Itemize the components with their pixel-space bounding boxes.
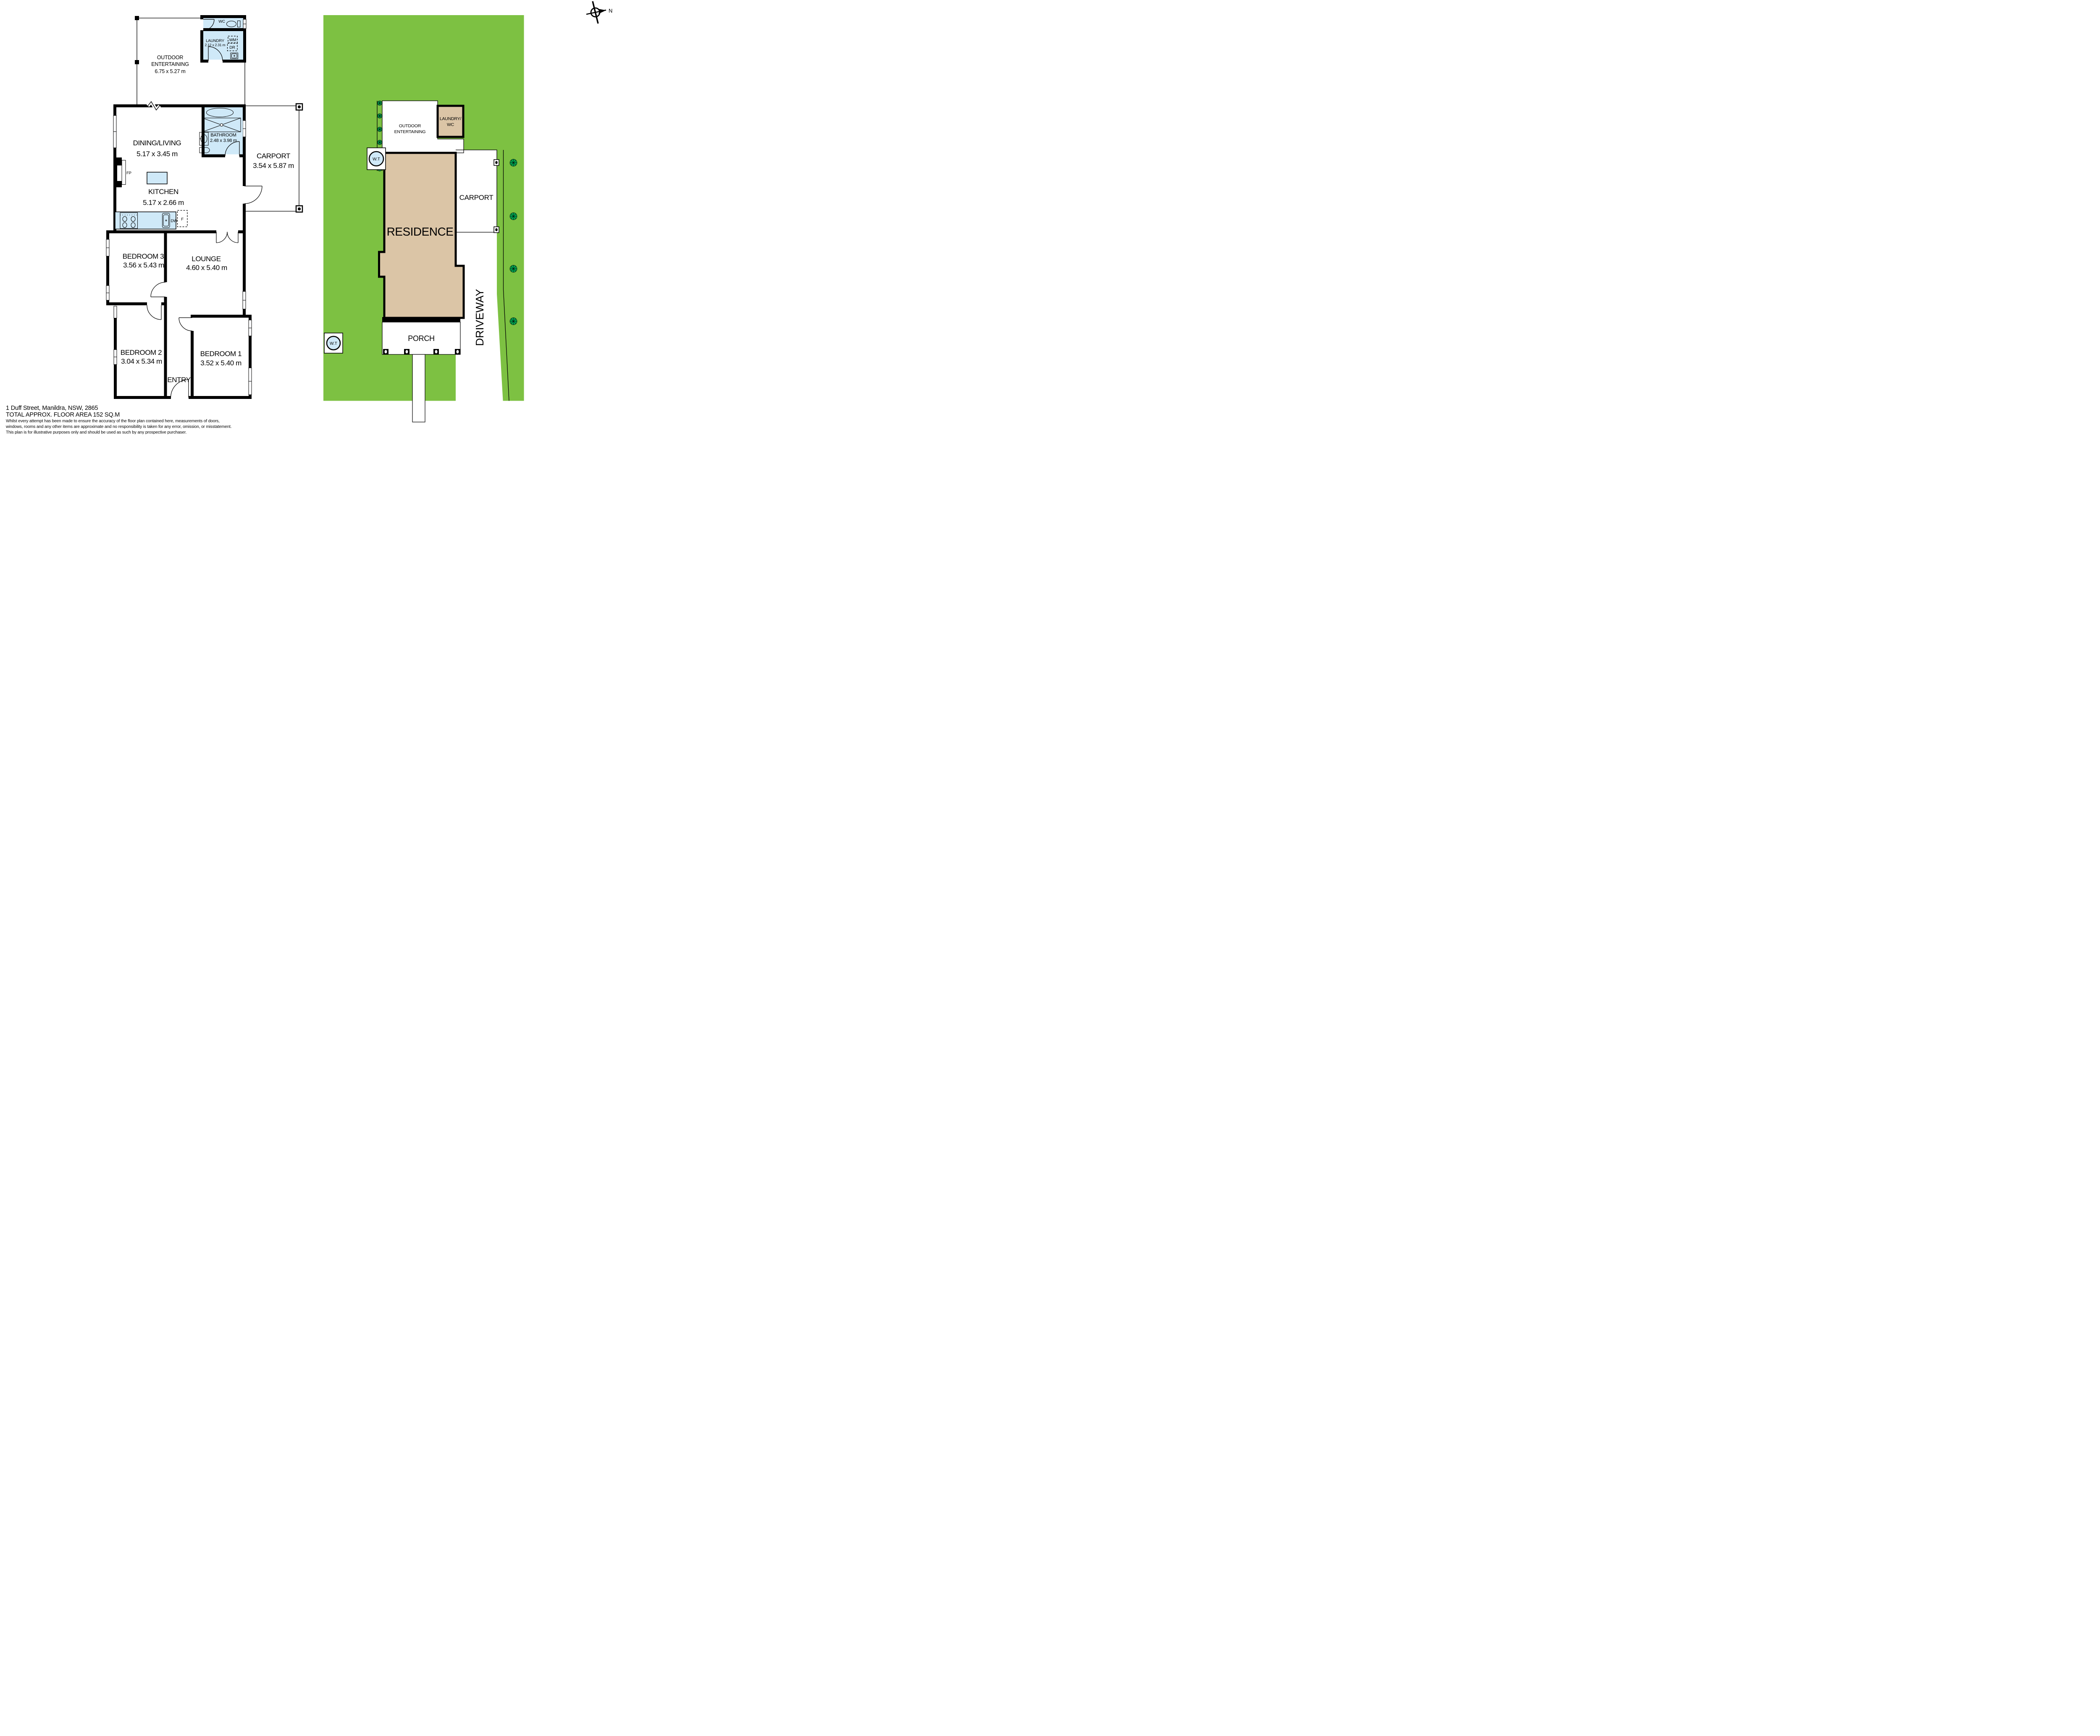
fireplace: FP [116, 157, 131, 187]
site-outdoor-label-1: OUTDOOR [399, 123, 421, 128]
entry-label: ENTRY [167, 376, 190, 384]
laundry-wc-site [438, 106, 463, 137]
laundry-wc-block: WC LAUNDRY 2.12 x 2.31 m WM DR [200, 15, 246, 63]
site-laundry-label-2: WC [447, 122, 454, 127]
disclaimer-line-3: This plan is for illustrative purposes o… [6, 430, 186, 435]
water-tank-bottom: W.T [324, 333, 343, 353]
wc-label: WC [218, 19, 225, 24]
water-tank-label: W.T [330, 341, 337, 346]
disclaimer-line-2: windows, rooms and any other items are a… [5, 425, 231, 429]
porch-post [455, 349, 460, 354]
dryer-label: DR [229, 45, 235, 50]
site-carport-label: CARPORT [459, 194, 493, 202]
compass-north-label: N [609, 8, 612, 14]
kitchen-dims: 5.17 x 2.66 m [143, 199, 184, 207]
site-porch-label: PORCH [408, 334, 435, 343]
window [114, 306, 117, 318]
bed1-label: BEDROOM 1 [200, 350, 241, 358]
bathroom: BATHROOM 2.48 x 3.98 m [199, 108, 246, 157]
address-text: 1 Duff Street, Manildra, NSW, 2865 [6, 405, 98, 412]
bathroom-dims: 2.48 x 3.98 m [210, 138, 237, 143]
site-residence-label: RESIDENCE [387, 225, 454, 238]
site-laundry-label-1: LAUNDRY/ [440, 116, 462, 121]
carport-floorplan: CARPORT 3.54 x 5.87 m [246, 104, 302, 212]
lounge-dims: 4.60 x 5.40 m [186, 264, 227, 272]
post-marker [135, 16, 139, 20]
dining-label: DINING/LIVING [133, 139, 181, 147]
bed3-label: BEDROOM 3 [123, 252, 164, 260]
outdoor-label-1: OUTDOOR [157, 55, 184, 60]
floorplan-drawing: WC LAUNDRY 2.12 x 2.31 m WM DR OUTDOOR E… [0, 0, 614, 434]
floorplan-page: WC LAUNDRY 2.12 x 2.31 m WM DR OUTDOOR E… [0, 0, 614, 434]
floor-area-text: TOTAL APPROX. FLOOR AREA 152 SQ.M [6, 412, 120, 418]
laundry-dims: 2.12 x 2.31 m [205, 43, 226, 47]
dining-dims: 5.17 x 3.45 m [136, 150, 178, 158]
post-marker [135, 60, 139, 64]
carport-dims: 3.54 x 5.87 m [253, 162, 294, 170]
compass: N [586, 1, 612, 24]
site-plan: W.T W.T OUTDOOR ENTERTAINING LAUNDRY/ WC… [323, 15, 524, 422]
bed3-dims: 3.56 x 5.43 m [123, 261, 164, 269]
bed1-dims: 3.52 x 5.40 m [200, 359, 241, 367]
footer: 1 Duff Street, Manildra, NSW, 2865 TOTAL… [5, 405, 231, 434]
porch-post [383, 349, 388, 354]
bed2-label: BEDROOM 2 [121, 349, 162, 357]
site-driveway-label: DRIVEWAY [473, 289, 486, 346]
bathroom-label: BATHROOM [210, 133, 236, 138]
lounge-label: LOUNGE [192, 255, 220, 263]
disclaimer-line-1: Whilst every attempt has been made to en… [6, 419, 220, 424]
carport-label: CARPORT [257, 152, 290, 160]
kitchen: KITCHEN 5.17 x 2.66 m DW F [115, 172, 187, 229]
dishwasher-label: DW [171, 219, 178, 223]
carport-post [494, 160, 499, 165]
outdoor-label-2: ENTERTAINING [151, 61, 189, 67]
washing-machine-label: WM [229, 38, 236, 42]
porch-post [404, 349, 409, 354]
porch-post [433, 349, 439, 354]
compass-arrow [598, 9, 606, 14]
fridge-label: F [181, 217, 184, 222]
kitchen-label: KITCHEN [148, 188, 178, 196]
kitchen-island [147, 172, 167, 184]
site-outdoor-label-2: ENTERTAINING [394, 129, 426, 134]
carport-post [494, 227, 499, 233]
bed2-dims: 3.04 x 5.34 m [121, 357, 162, 365]
water-tank-label: W.T [373, 157, 380, 162]
front-path [412, 354, 425, 422]
water-tank-top: W.T [367, 148, 386, 170]
carport-post [296, 206, 302, 212]
fireplace-label: FP [126, 171, 131, 176]
carport-post [296, 104, 302, 110]
wet-area-fill [205, 108, 243, 155]
floor-plan: WC LAUNDRY 2.12 x 2.31 m WM DR OUTDOOR E… [106, 15, 302, 399]
wall-break-marker [148, 102, 160, 110]
outdoor-dims: 6.75 x 5.27 m [155, 68, 185, 74]
